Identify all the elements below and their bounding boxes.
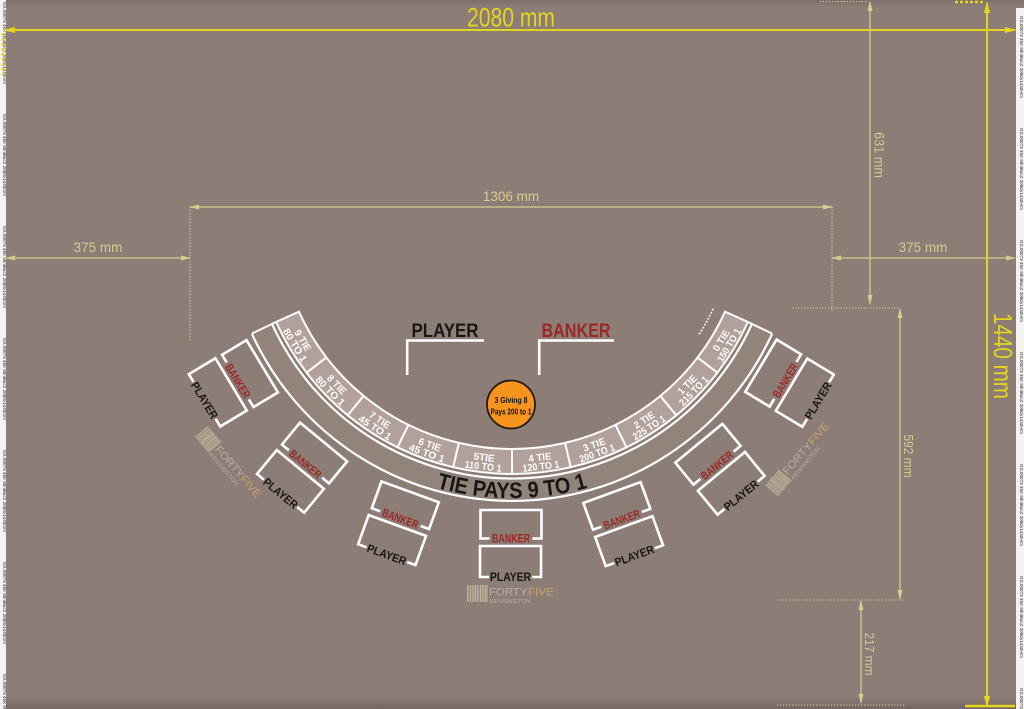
svg-text:GS.00073 45K MiniBac2 2080x144: GS.00073 45K MiniBac2 2080x1440mm [1019, 464, 1024, 546]
svg-text:GS.00073 45K MiniBac2 2080x144: GS.00073 45K MiniBac2 2080x1440mm [2, 450, 7, 532]
svg-text:GS.00073 45K MiniBac2 2080x144: GS.00073 45K MiniBac2 2080x1440mm [1019, 576, 1024, 658]
svg-text:375 mm: 375 mm [899, 240, 948, 255]
svg-text:375 mm: 375 mm [74, 240, 123, 255]
svg-text:2080 mm: 2080 mm [467, 3, 555, 33]
svg-text:GS.00073 45K MiniBac2 2080x144: GS.00073 45K MiniBac2 2080x1440mm [1019, 688, 1024, 709]
svg-text:GS.00073 45K MiniBac2 2080x144: GS.00073 45K MiniBac2 2080x1440mm [2, 338, 7, 420]
svg-text:1306 mm: 1306 mm [483, 189, 539, 204]
svg-text:631 mm: 631 mm [872, 132, 888, 178]
svg-text:GS.00073 45K MiniBac2 2080x144: GS.00073 45K MiniBac2 2080x1440mm [1019, 16, 1024, 98]
svg-text:GS.00073 45K MiniBac2 2080x144: GS.00073 45K MiniBac2 2080x1440mm [1019, 352, 1024, 434]
svg-text:GS.00073 45K MiniBac2 2080x144: GS.00073 45K MiniBac2 2080x1440mm [2, 562, 7, 644]
svg-text:Pays 200 to 1: Pays 200 to 1 [491, 408, 532, 417]
svg-text:FIVE: FIVE [528, 587, 554, 599]
svg-text:217 mm: 217 mm [862, 633, 877, 676]
svg-text:PLAYER: PLAYER [490, 572, 532, 584]
svg-text:GS.00073 45K MiniBac2 2080x144: GS.00073 45K MiniBac2 2080x1440mm [2, 674, 7, 709]
svg-text:592 mm: 592 mm [901, 435, 916, 478]
svg-text:BANKER: BANKER [492, 534, 531, 546]
svg-text:GS.00073 45K MiniBac2 2080x144: GS.00073 45K MiniBac2 2080x1440mm [2, 114, 7, 196]
svg-text:GS.00073 45K MiniBac2 2080x144: GS.00073 45K MiniBac2 2080x1440mm [1019, 240, 1024, 322]
svg-text:BANKER: BANKER [542, 320, 611, 342]
svg-text:1440 mm: 1440 mm [988, 313, 1018, 399]
svg-text:PLAYER: PLAYER [412, 320, 479, 342]
svg-text:FORTY: FORTY [489, 587, 528, 599]
svg-text:3 Giving 8: 3 Giving 8 [495, 396, 528, 405]
svg-text:GS.00073 45K MiniBac2 2080x144: GS.00073 45K MiniBac2 2080x1440mm [1019, 128, 1024, 210]
svg-text:GS.00073 45K MiniBac2 2080x144: GS.00073 45K MiniBac2 2080x1440mm [2, 226, 7, 308]
svg-text:KENSINGTON: KENSINGTON [490, 599, 531, 605]
